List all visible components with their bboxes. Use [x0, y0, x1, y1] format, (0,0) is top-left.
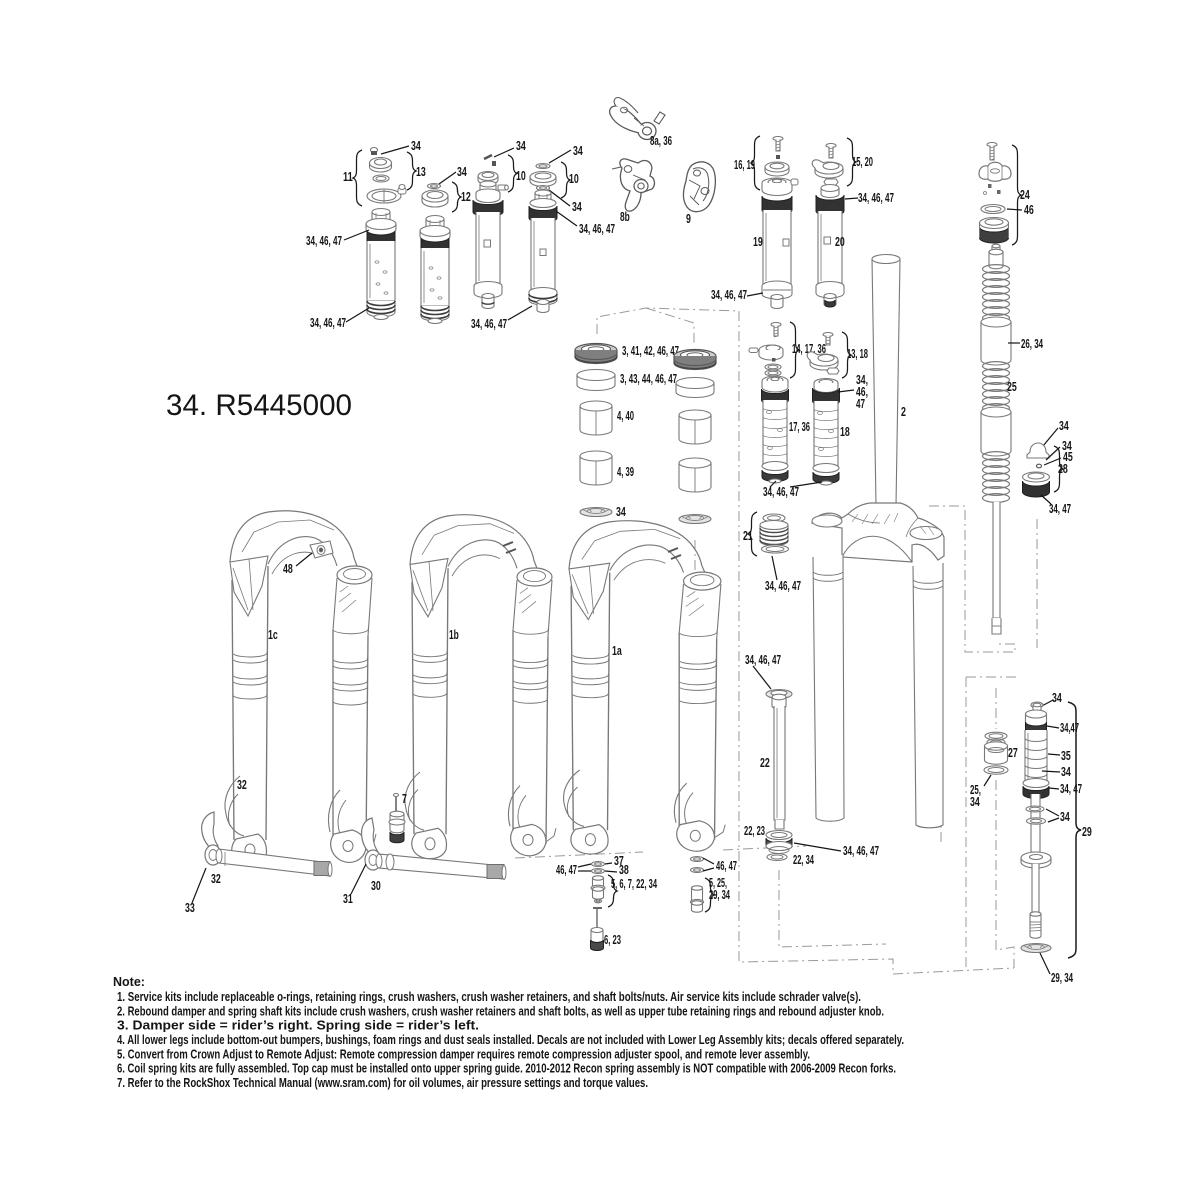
svg-text:46, 47: 46, 47 — [716, 858, 737, 873]
svg-text:10: 10 — [516, 168, 526, 183]
svg-text:33: 33 — [185, 900, 195, 915]
svg-text:29: 29 — [1082, 824, 1092, 839]
svg-text:34: 34 — [411, 138, 421, 153]
svg-text:34, 46, 47: 34, 46, 47 — [763, 484, 799, 499]
svg-text:34: 34 — [516, 138, 526, 153]
svg-text:34, 47: 34, 47 — [1060, 781, 1082, 796]
svg-text:1. Service kits include replac: 1. Service kits include replaceable o-ri… — [117, 990, 861, 1004]
svg-text:11: 11 — [343, 169, 353, 184]
svg-text:4, 40: 4, 40 — [617, 408, 634, 423]
svg-text:34: 34 — [457, 164, 467, 179]
svg-text:18: 18 — [840, 424, 850, 439]
svg-text:6, 23: 6, 23 — [604, 932, 621, 947]
svg-text:2. Rebound damper and spring s: 2. Rebound damper and spring shaft kits … — [117, 1004, 884, 1018]
svg-text:34: 34 — [616, 504, 626, 519]
svg-text:22, 34: 22, 34 — [793, 852, 815, 867]
svg-text:34, 46, 47: 34, 46, 47 — [306, 233, 342, 248]
svg-text:34, 46, 47: 34, 46, 47 — [858, 190, 894, 205]
svg-text:34, 46, 47: 34, 46, 47 — [765, 578, 801, 593]
svg-text:30: 30 — [371, 878, 381, 893]
svg-text:20: 20 — [835, 234, 845, 249]
svg-text:26, 34: 26, 34 — [1021, 336, 1044, 351]
svg-text:34: 34 — [1059, 418, 1069, 433]
svg-text:6. Coil spring kits are fully: 6. Coil spring kits are fully assembled.… — [117, 1062, 896, 1076]
svg-text:25: 25 — [1007, 379, 1017, 394]
svg-text:34, 46, 47: 34, 46, 47 — [310, 315, 346, 330]
svg-text:22, 23: 22, 23 — [744, 823, 765, 838]
svg-text:21: 21 — [743, 528, 753, 543]
svg-text:9: 9 — [686, 211, 691, 226]
svg-text:5. Convert from Crown Adjust t: 5. Convert from Crown Adjust to Remote A… — [117, 1047, 810, 1061]
svg-text:4, 39: 4, 39 — [617, 464, 634, 479]
svg-text:8b: 8b — [620, 209, 630, 224]
svg-text:34, 47: 34, 47 — [1049, 501, 1071, 516]
svg-text:29, 34: 29, 34 — [709, 887, 731, 902]
svg-text:29, 34: 29, 34 — [1051, 970, 1074, 985]
svg-text:46, 47: 46, 47 — [556, 862, 577, 877]
svg-text:34, 46, 47: 34, 46, 47 — [711, 287, 747, 302]
svg-text:34, 46, 47: 34, 46, 47 — [579, 221, 615, 236]
svg-text:34, 46, 47: 34, 46, 47 — [745, 652, 781, 667]
svg-text:46: 46 — [1024, 202, 1034, 217]
svg-text:3, 43, 44, 46, 47: 3, 43, 44, 46, 47 — [620, 371, 677, 386]
svg-text:22: 22 — [760, 755, 770, 770]
svg-text:3. Damper side = rider’s right: 3. Damper side = rider’s right. Spring s… — [117, 1019, 479, 1033]
svg-text:35: 35 — [1061, 748, 1071, 763]
svg-text:34: 34 — [1052, 690, 1062, 705]
svg-text:38: 38 — [619, 862, 629, 877]
svg-text:28: 28 — [1058, 461, 1068, 476]
svg-text:7. Refer to the RockShox Techn: 7. Refer to the RockShox Technical Manua… — [117, 1076, 648, 1090]
svg-text:34: 34 — [970, 794, 980, 809]
svg-text:10: 10 — [569, 171, 579, 186]
svg-text:1a: 1a — [612, 643, 622, 658]
svg-text:Note:: Note: — [113, 975, 145, 989]
svg-text:7: 7 — [402, 791, 407, 806]
svg-text:24: 24 — [1020, 187, 1030, 202]
svg-text:34, 46, 47: 34, 46, 47 — [471, 316, 507, 331]
svg-text:13: 13 — [416, 164, 426, 179]
svg-text:4. All lower legs include bott: 4. All lower legs include bottom-out bum… — [117, 1033, 904, 1047]
svg-text:19: 19 — [753, 234, 763, 249]
svg-text:47: 47 — [856, 396, 865, 411]
svg-text:32: 32 — [211, 871, 221, 886]
svg-text:31: 31 — [343, 891, 353, 906]
svg-text:34: 34 — [1060, 809, 1070, 824]
svg-text:1b: 1b — [449, 627, 459, 642]
svg-text:5, 6, 7, 22, 34: 5, 6, 7, 22, 34 — [611, 876, 658, 891]
svg-text:2: 2 — [901, 404, 906, 419]
svg-text:34. R5445000: 34. R5445000 — [166, 389, 352, 422]
svg-text:15, 20: 15, 20 — [852, 154, 873, 169]
svg-text:16, 19: 16, 19 — [734, 157, 755, 172]
svg-text:27: 27 — [1008, 745, 1018, 760]
svg-text:17, 36: 17, 36 — [789, 419, 810, 434]
svg-text:1c: 1c — [268, 627, 278, 642]
svg-text:34, 46, 47: 34, 46, 47 — [843, 843, 879, 858]
svg-text:12: 12 — [461, 189, 471, 204]
svg-text:3, 41, 42, 46, 47: 3, 41, 42, 46, 47 — [622, 343, 679, 358]
svg-text:13, 18: 13, 18 — [847, 346, 868, 361]
svg-text:48: 48 — [283, 561, 293, 576]
svg-text:34: 34 — [573, 143, 583, 158]
svg-text:32: 32 — [237, 777, 247, 792]
svg-text:34: 34 — [1061, 764, 1071, 779]
svg-text:34: 34 — [572, 199, 582, 214]
svg-text:8a, 36: 8a, 36 — [650, 133, 672, 148]
